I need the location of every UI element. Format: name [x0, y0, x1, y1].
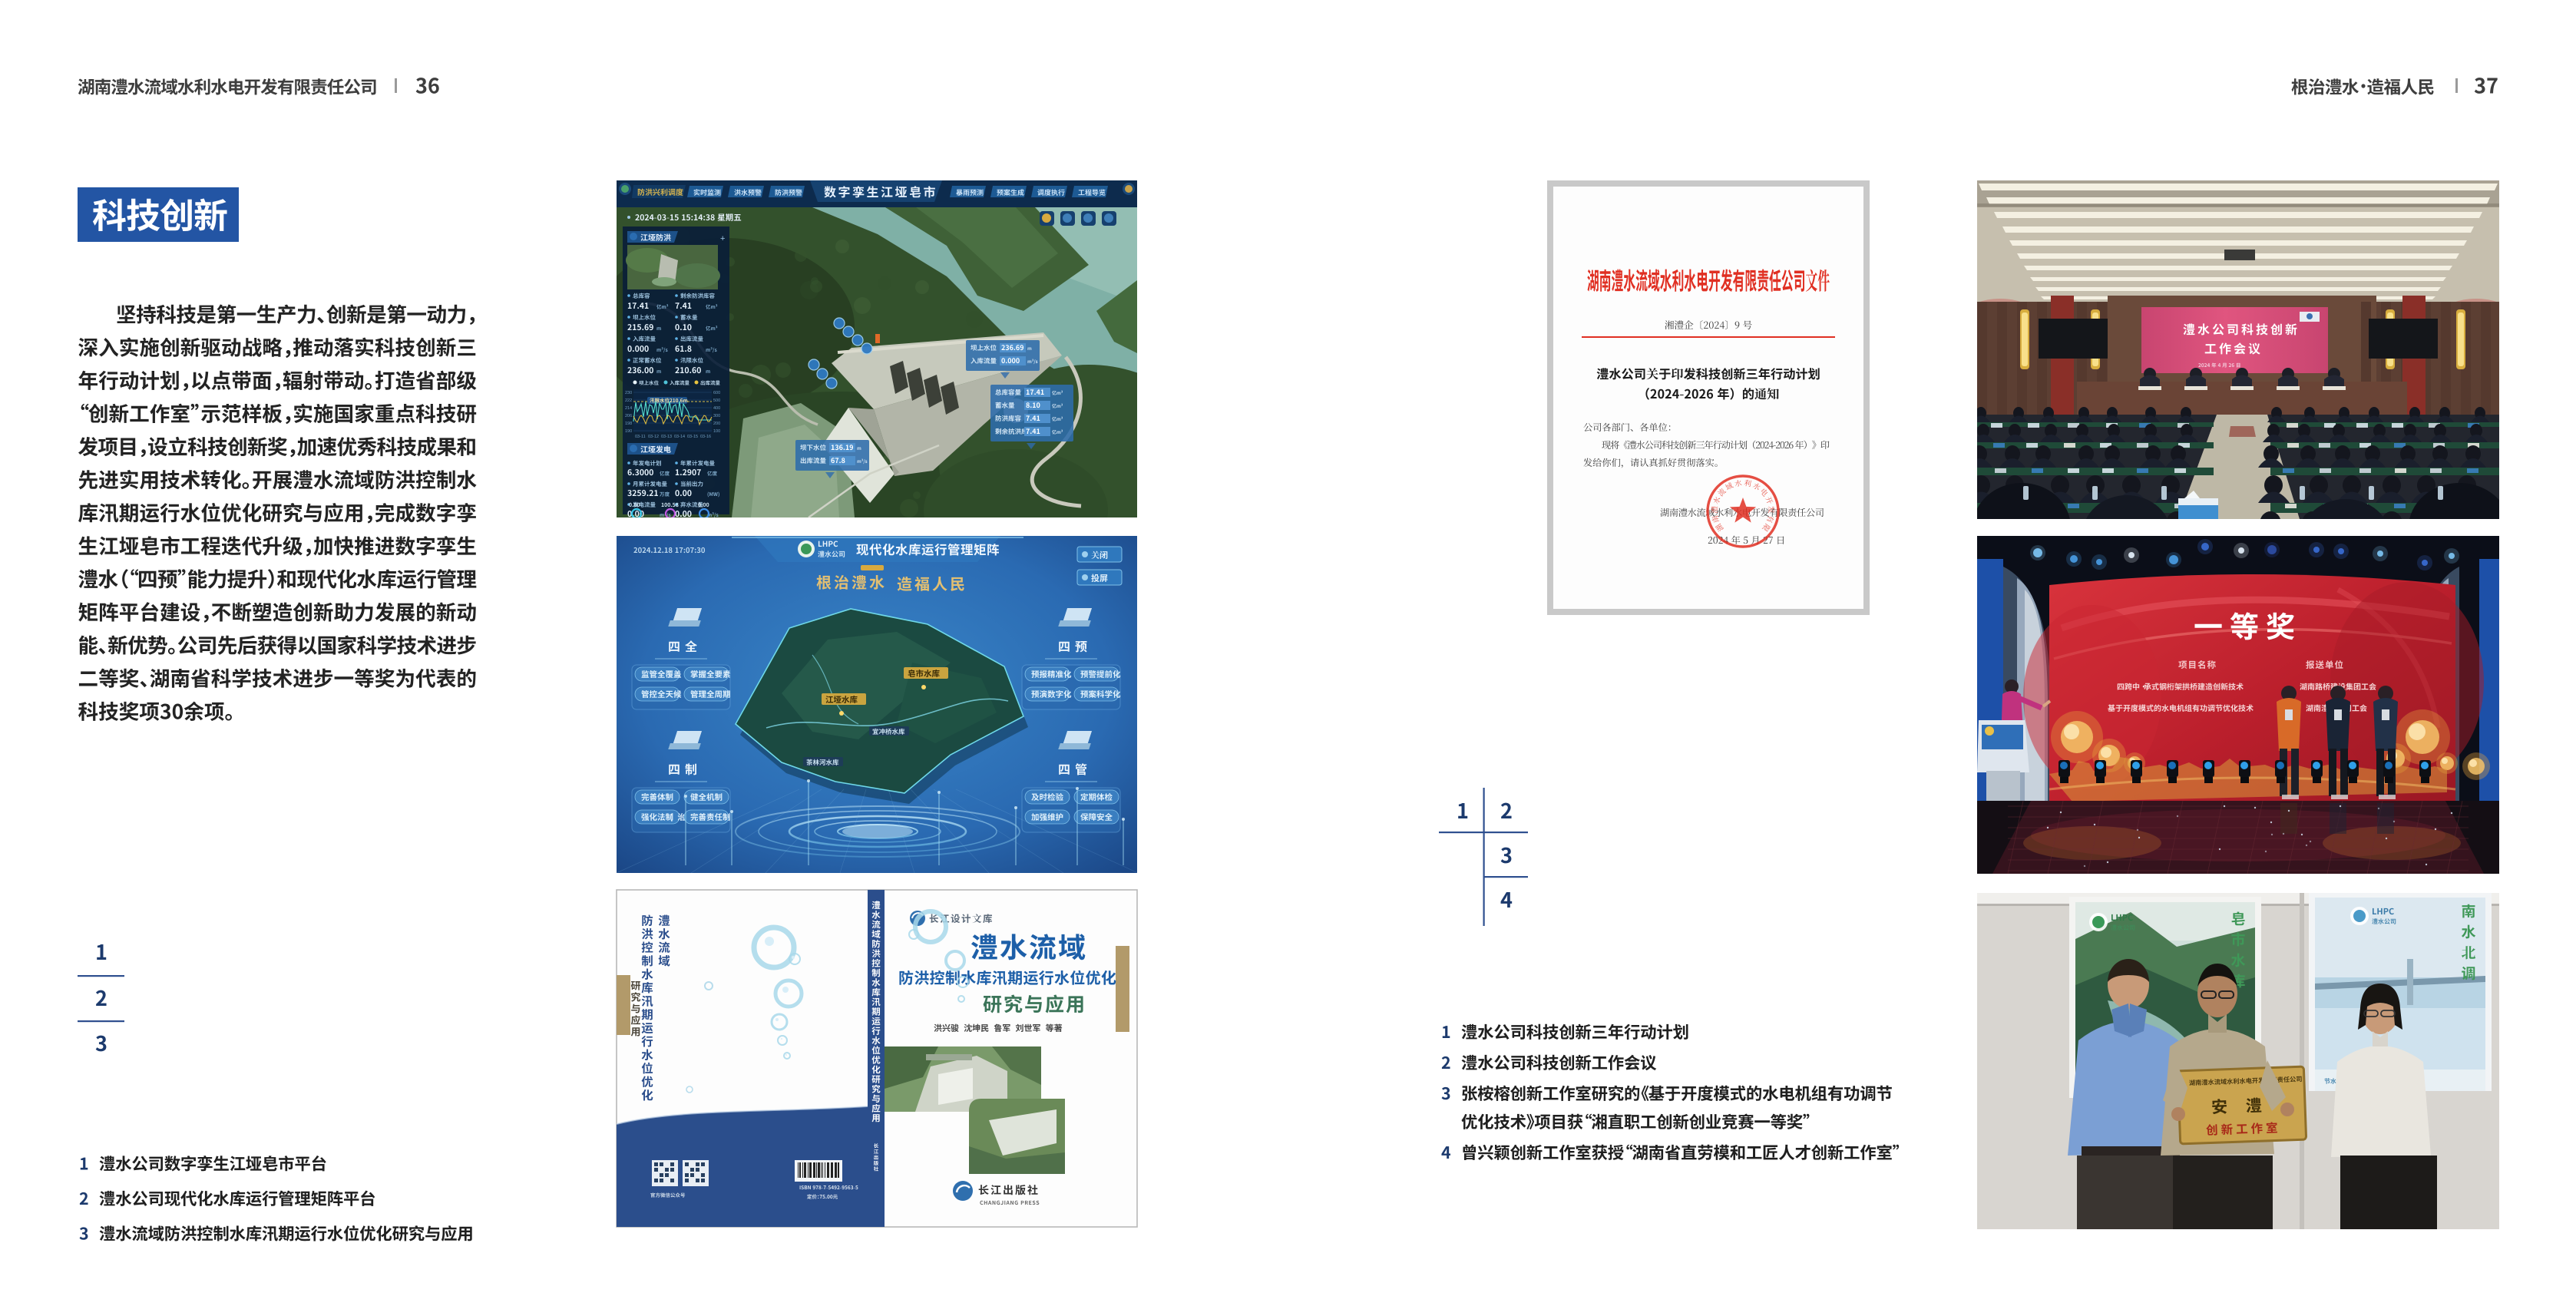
svg-text:198: 198 [625, 422, 632, 426]
svg-text:300: 300 [713, 414, 720, 418]
svg-text:+: + [720, 234, 725, 243]
svg-text:190: 190 [625, 429, 632, 434]
svg-text:600: 600 [713, 391, 720, 395]
svg-text:230: 230 [625, 391, 632, 395]
svg-text:200: 200 [713, 422, 720, 426]
svg-text:03-16: 03-16 [700, 435, 711, 439]
svg-text:500: 500 [713, 398, 720, 403]
svg-text:03-11: 03-11 [635, 435, 646, 439]
svg-text:03-13: 03-13 [661, 435, 672, 439]
svg-text:222: 222 [625, 398, 632, 403]
svg-text:100: 100 [713, 429, 720, 434]
svg-text:03-12: 03-12 [648, 435, 659, 439]
svg-text:03-14: 03-14 [674, 435, 685, 439]
svg-text:206: 206 [625, 414, 632, 418]
svg-text:03-15: 03-15 [687, 435, 698, 439]
svg-text:214: 214 [625, 406, 632, 411]
svg-text:400: 400 [713, 406, 720, 411]
